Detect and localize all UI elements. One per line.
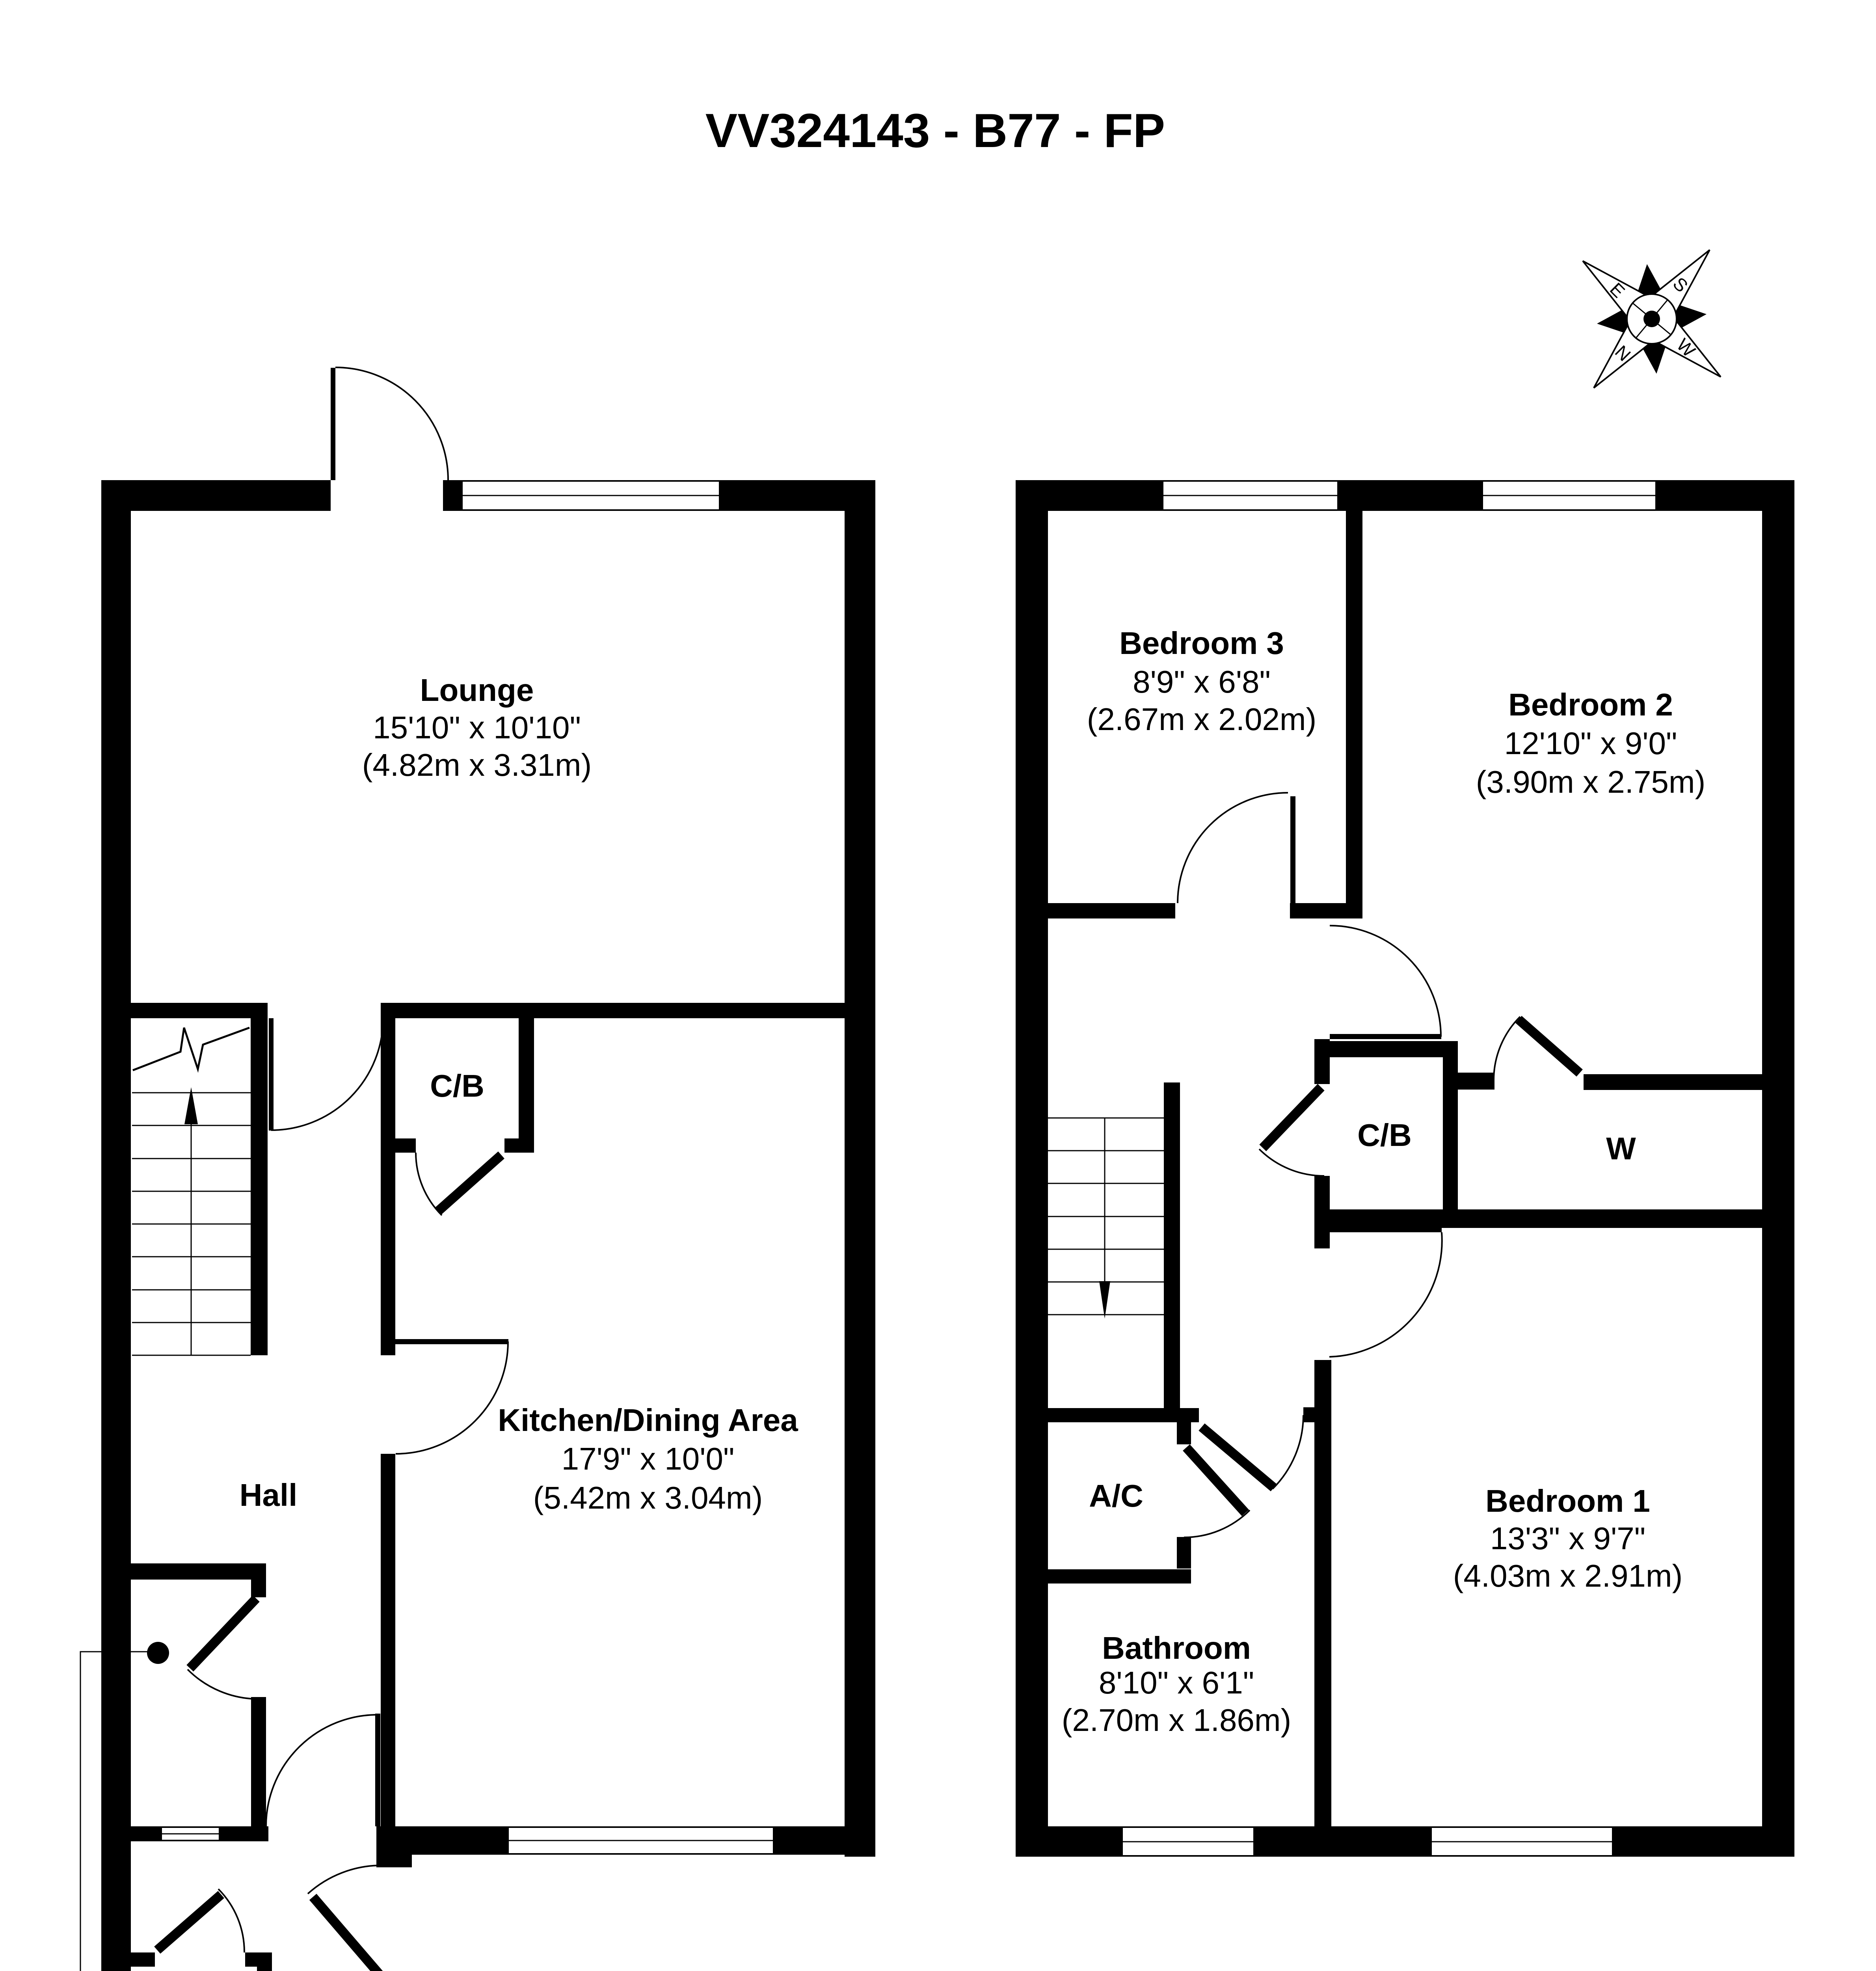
svg-text:Bedroom 1: Bedroom 1 [1485,1483,1650,1518]
svg-text:(4.03m x 2.91m): (4.03m x 2.91m) [1453,1558,1682,1593]
svg-text:15'10" x 10'10": 15'10" x 10'10" [373,710,581,745]
svg-text:17'9" x 10'0": 17'9" x 10'0" [562,1441,735,1476]
svg-text:VV324143 - B77 - FP: VV324143 - B77 - FP [705,104,1165,157]
svg-text:(5.42m x 3.04m): (5.42m x 3.04m) [533,1480,763,1515]
svg-text:12'10" x 9'0": 12'10" x 9'0" [1504,726,1677,761]
svg-text:W: W [1606,1131,1636,1166]
svg-text:Kitchen/Dining Area: Kitchen/Dining Area [498,1403,798,1438]
svg-text:Bathroom: Bathroom [1102,1630,1251,1665]
svg-text:Hall: Hall [240,1477,298,1513]
svg-text:Bedroom 2: Bedroom 2 [1508,687,1673,722]
svg-text:C/B: C/B [430,1068,484,1103]
svg-text:8'10" x 6'1": 8'10" x 6'1" [1099,1665,1254,1700]
svg-text:Bedroom 3: Bedroom 3 [1119,626,1284,661]
svg-text:13'3" x 9'7": 13'3" x 9'7" [1490,1521,1645,1556]
svg-text:Lounge: Lounge [420,673,534,708]
svg-text:A/C: A/C [1089,1478,1143,1513]
svg-text:(4.82m x 3.31m): (4.82m x 3.31m) [362,747,592,782]
svg-text:(2.70m x 1.86m): (2.70m x 1.86m) [1062,1703,1291,1738]
svg-text:(3.90m x 2.75m): (3.90m x 2.75m) [1476,764,1705,799]
svg-text:C/B: C/B [1357,1118,1412,1153]
svg-text:8'9" x 6'8": 8'9" x 6'8" [1133,664,1271,699]
svg-text:(2.67m x 2.02m): (2.67m x 2.02m) [1087,702,1316,737]
